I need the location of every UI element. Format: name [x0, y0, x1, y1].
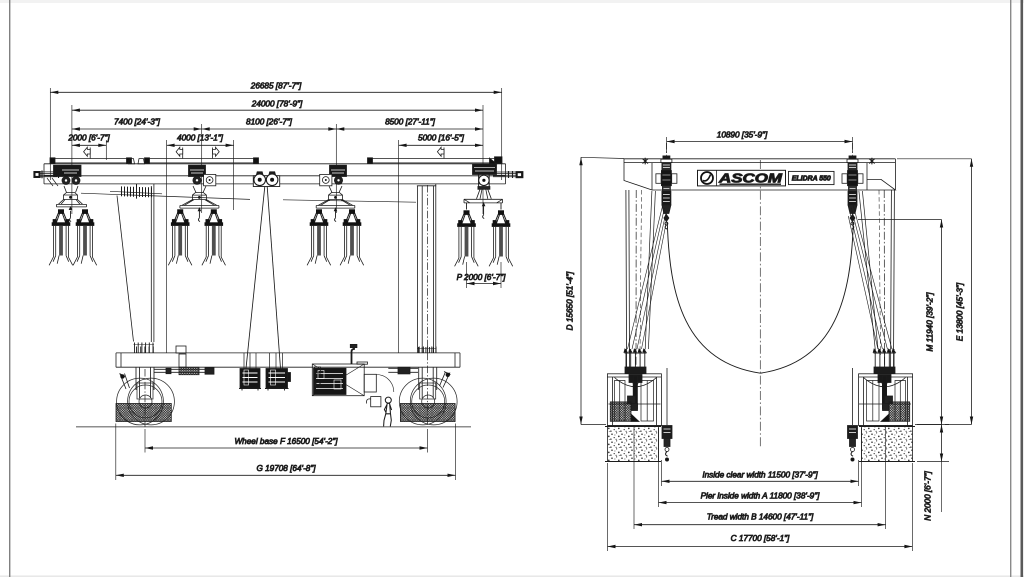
svg-text:2000 [6'-7"]: 2000 [6'-7"]	[67, 134, 110, 143]
svg-text:ASCOM: ASCOM	[718, 171, 783, 185]
svg-text:N 2000 [6'-7"]: N 2000 [6'-7"]	[924, 471, 933, 521]
svg-text:4000 [13'-1"]: 4000 [13'-1"]	[177, 134, 224, 143]
svg-text:ELIDRA 550: ELIDRA 550	[792, 174, 831, 183]
svg-text:Tread width B 14600 [47'-11"]: Tread width B 14600 [47'-11"]	[707, 513, 814, 522]
svg-text:26685 [87'-7"]: 26685 [87'-7"]	[250, 82, 302, 91]
svg-text:24000 [78'-9"]: 24000 [78'-9"]	[251, 100, 303, 109]
svg-text:M 11940 [39'-2"]: M 11940 [39'-2"]	[926, 292, 935, 352]
svg-text:E 13800 [45'-3"]: E 13800 [45'-3"]	[956, 282, 965, 341]
svg-text:Pier inside width A 11800 [38': Pier inside width A 11800 [38'-9"]	[701, 492, 821, 501]
svg-text:C 17700 [58'-1"]: C 17700 [58'-1"]	[731, 534, 790, 543]
svg-text:7400 [24'-3"]: 7400 [24'-3"]	[114, 118, 161, 127]
svg-text:Inside clear width 11500 [37'-: Inside clear width 11500 [37'-9"]	[702, 470, 818, 479]
svg-text:8100 [26'-7"]: 8100 [26'-7"]	[246, 118, 293, 127]
svg-text:D 15650 [51'-4"]: D 15650 [51'-4"]	[566, 271, 575, 330]
svg-text:8500 [27'-11"]: 8500 [27'-11"]	[385, 118, 436, 127]
svg-text:P 2000 [6'-7"]: P 2000 [6'-7"]	[457, 273, 506, 282]
svg-text:G 19708 [64'-8"]: G 19708 [64'-8"]	[256, 464, 316, 473]
svg-text:5000 [16'-5"]: 5000 [16'-5"]	[418, 134, 465, 143]
svg-text:10890 [35'-9"]: 10890 [35'-9"]	[717, 131, 768, 140]
svg-text:Wheel base F 16500 [54'-2"]: Wheel base F 16500 [54'-2"]	[234, 437, 338, 446]
